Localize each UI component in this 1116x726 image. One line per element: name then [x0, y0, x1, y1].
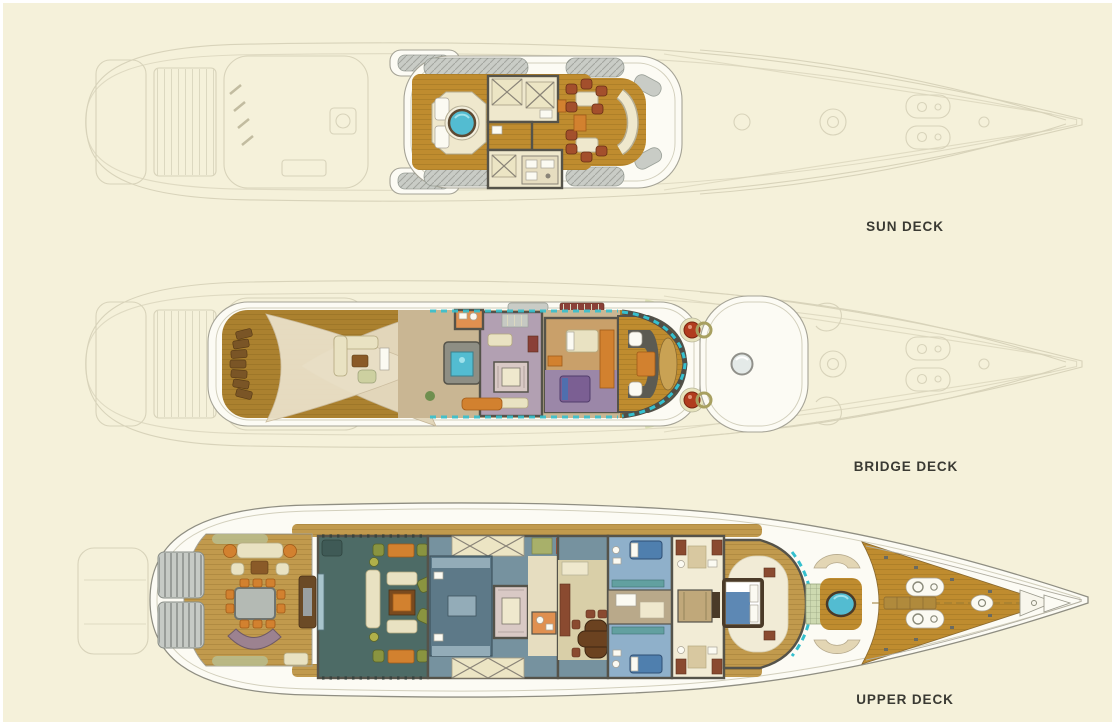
day-head [532, 612, 556, 634]
roof-hatch [697, 296, 808, 432]
helm-chair [629, 332, 642, 346]
plant [425, 391, 435, 401]
guest-cabins [608, 536, 672, 678]
yacht-deck-plans-image: SUN DECK [0, 0, 1116, 726]
bridge-interior [398, 310, 620, 418]
dining-room [558, 536, 614, 678]
helm-chair [629, 382, 642, 396]
spa-tub [444, 342, 480, 384]
wet-bar [522, 156, 558, 184]
upper-deck-label: UPPER DECK [856, 692, 954, 707]
jacuzzi [432, 92, 486, 154]
bridge-deck-label: BRIDGE DECK [854, 459, 958, 474]
sun-deck-superstructure [390, 50, 682, 194]
deck-plans-canvas: SUN DECK [0, 0, 1116, 726]
captain-cabin [545, 318, 618, 412]
main-salon [318, 536, 437, 678]
closet [678, 590, 712, 622]
sun-deck-label: SUN DECK [866, 219, 944, 234]
stairs [494, 362, 528, 392]
sideboard [574, 115, 586, 131]
staircase [494, 586, 528, 638]
tv-cabinet [299, 576, 316, 628]
master-tv [712, 592, 720, 618]
